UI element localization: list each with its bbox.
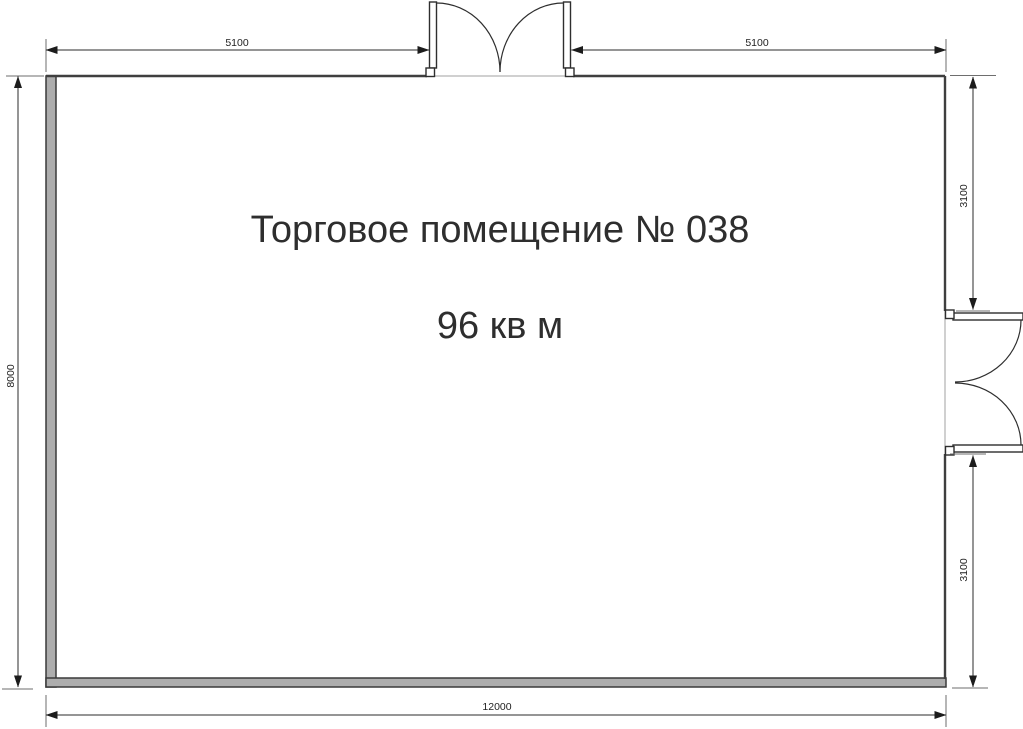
double-door-right — [946, 310, 1023, 455]
door-swing-arc — [500, 3, 564, 72]
dimension-label: 5100 — [225, 37, 249, 49]
door-hinge — [946, 310, 955, 319]
door-leaf — [430, 2, 437, 68]
dimension-top-right: 5100 — [572, 37, 947, 72]
dimension-label: 8000 — [5, 364, 17, 388]
room-floor-hatch — [55, 76, 945, 678]
dimension-bottom: 12000 — [46, 695, 946, 727]
dimension-label: 3100 — [958, 558, 970, 582]
dimension-label: 3100 — [958, 184, 970, 208]
dimension-label: 12000 — [482, 701, 511, 713]
dimension-right-bottom: 3100 — [950, 454, 988, 688]
dimension-label: 5100 — [745, 37, 769, 49]
room-area: 96 кв м — [437, 305, 563, 347]
dimension-left: 8000 — [2, 76, 44, 689]
floor-plan-canvas: 5100 5100 8000 3100 3100 12000 Торговое … — [0, 0, 1023, 729]
floor-plan-page: 5100 5100 8000 3100 3100 12000 Торговое … — [0, 0, 1023, 729]
door-swing-arc — [437, 3, 501, 72]
double-door-top — [426, 2, 574, 77]
wall-left — [46, 76, 56, 687]
door-leaf — [564, 2, 571, 68]
dimension-right-top: 3100 — [950, 76, 996, 312]
door-swing-arc — [955, 383, 1021, 445]
door-hinge — [566, 68, 575, 77]
door-hinge — [426, 68, 435, 77]
room-title: Торговое помещение № 038 — [251, 209, 750, 251]
door-swing-arc — [955, 320, 1021, 382]
wall-bottom — [46, 678, 946, 687]
door-leaf — [953, 313, 1023, 320]
dimension-top-left: 5100 — [46, 37, 429, 72]
door-leaf — [953, 445, 1023, 452]
